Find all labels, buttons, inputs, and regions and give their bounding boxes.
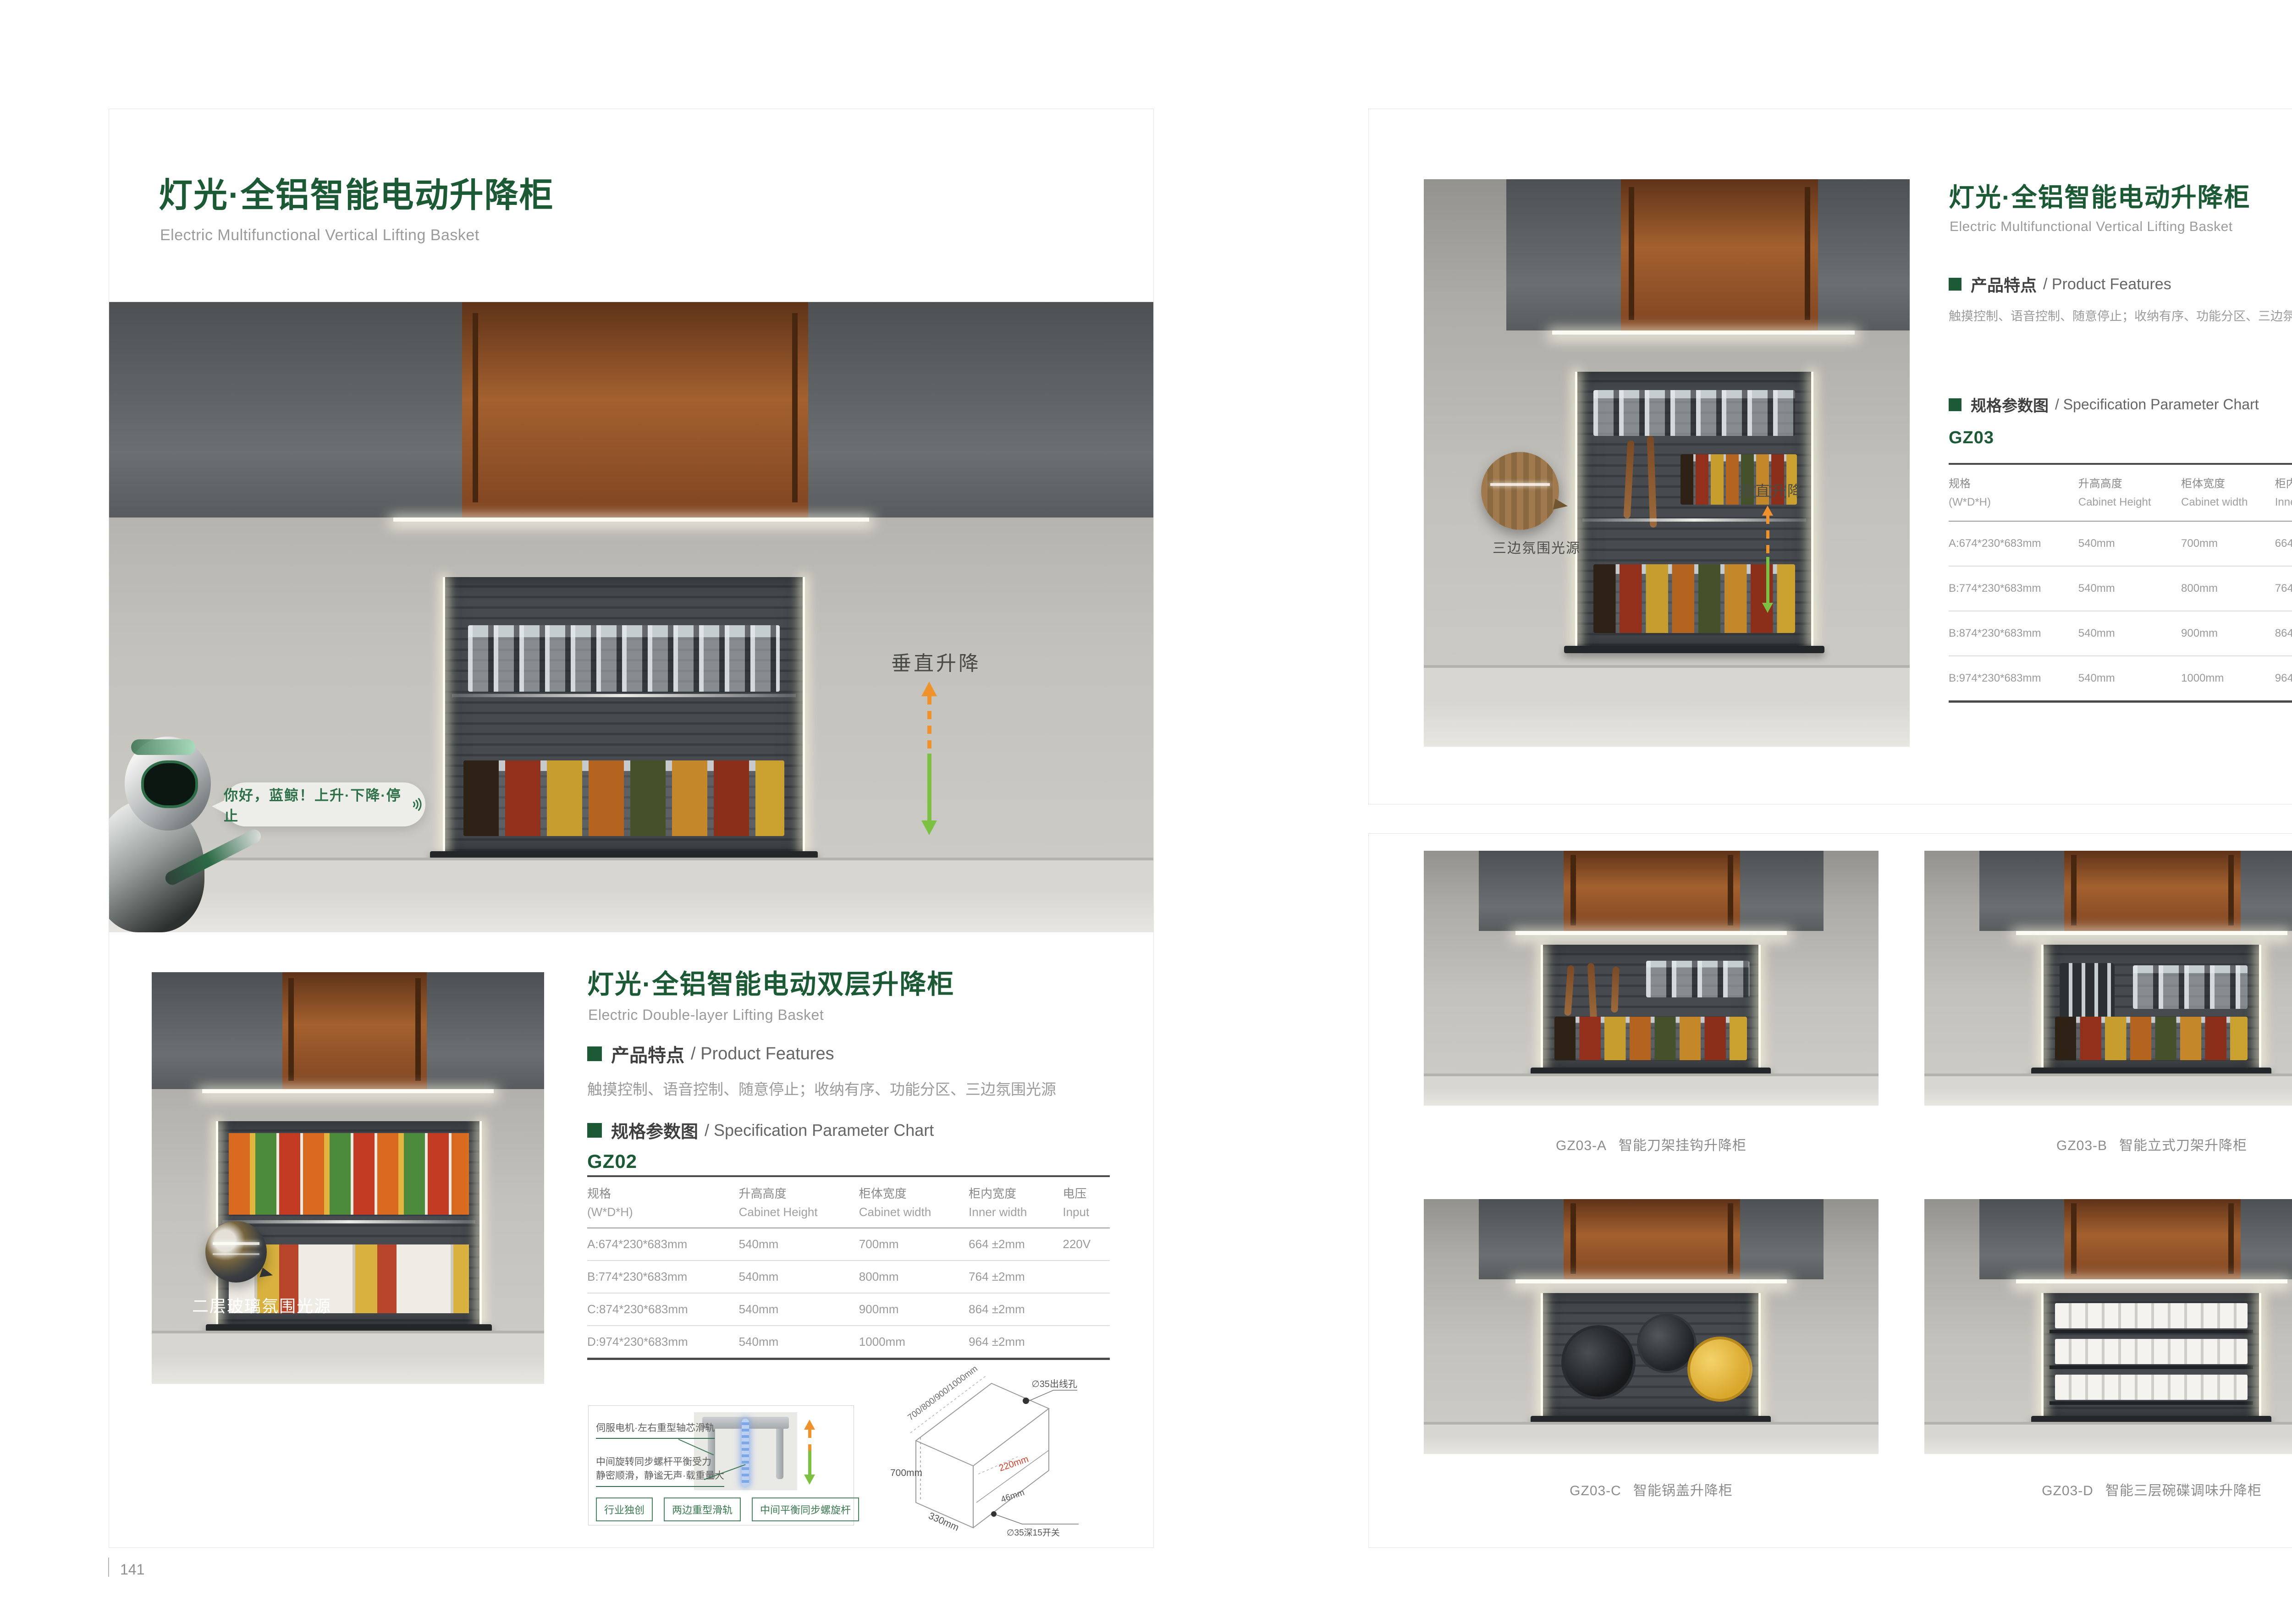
- voice-bubble-text: 你好，蓝鲸！上升·下降·停止: [224, 784, 404, 825]
- features-heading: 产品特点 / Product Features: [587, 1040, 834, 1067]
- spec-table-gz03: 规格(W*D*H) 升高高度Cabinet Height 柜体宽度Cabinet…: [1949, 463, 2292, 703]
- product-photo-gz03-b: [1924, 851, 2292, 1106]
- model-code: GZ02: [587, 1151, 637, 1173]
- table-row: B:774*230*683mm540mm800mm764 ±2mm: [587, 1260, 1110, 1293]
- spec-table-gz02: 规格(W*D*H) 升高高度Cabinet Height 柜体宽度Cabinet…: [587, 1175, 1110, 1360]
- product-caption: GZ03-C智能锅盖升降柜: [1424, 1479, 1879, 1499]
- cabinet-dimension-drawing: 700/800/900/1000mm ∅35出线孔 700mm 220mm 46…: [888, 1365, 1081, 1546]
- tag: 行业独创: [596, 1497, 653, 1521]
- product-code: GZ03-A: [1556, 1138, 1607, 1153]
- page-subtitle: Electric Multifunctional Vertical Liftin…: [160, 226, 479, 244]
- table-row: B:974*230*683mm540mm1000mm964 ±2mm: [1949, 655, 2292, 700]
- lift-arrows: [1762, 506, 1773, 613]
- table-header-row: 规格(W*D*H) 升高高度Cabinet Height 柜体宽度Cabinet…: [587, 1177, 1110, 1228]
- page-number-left: 141: [120, 1561, 144, 1578]
- green-square-bullet: [1949, 398, 1961, 411]
- product-photo-gz03-d: [1924, 1199, 2292, 1454]
- hole-label: ∅35出线孔: [1031, 1379, 1077, 1389]
- model-code: GZ03: [1949, 428, 1994, 448]
- lifting-rack: [443, 577, 805, 852]
- table-row: C:874*230*683mm540mm900mm864 ±2mm: [587, 1293, 1110, 1325]
- detail-callout-bubble: [1481, 452, 1559, 530]
- product-caption: GZ03-A智能刀架挂钩升降柜: [1424, 1134, 1879, 1154]
- page-title: 灯光·全铝智能电动升降柜: [1949, 177, 2251, 214]
- product-name: 智能锅盖升降柜: [1633, 1483, 1733, 1498]
- features-text: 触摸控制、语音控制、随意停止；收纳有序、功能分区、三边氛围光源: [587, 1077, 1146, 1099]
- cabinet-glass-doors: [462, 302, 808, 517]
- product-code: GZ03-B: [2056, 1138, 2107, 1153]
- feature-tags: 行业独创 两边重型滑轨 中间平衡同步螺旋杆: [596, 1497, 859, 1521]
- page-subtitle: Electric Multifunctional Vertical Liftin…: [1950, 219, 2233, 235]
- vertical-lift-label: 垂直升降: [891, 647, 981, 676]
- lifting-rack: [1575, 372, 1813, 647]
- photo-caption: 二层玻璃氛围光源: [192, 1293, 331, 1317]
- left-page: 灯光·全铝智能电动升降柜 Electric Multifunctional Ve…: [109, 109, 1154, 1548]
- product-name: 智能立式刀架升降柜: [2119, 1138, 2247, 1153]
- mini-lift-arrows: [804, 1420, 815, 1485]
- table-row: D:974*230*683mm540mm1000mm964 ±2mm: [587, 1325, 1110, 1358]
- table-header-row: 规格(W*D*H) 升高高度Cabinet Height 柜体宽度Cabinet…: [1949, 465, 2292, 522]
- table-row: A:674*230*683mm540mm700mm664 ±2mm220V: [587, 1228, 1110, 1260]
- spec-heading: 规格参数图 / Specification Parameter Chart: [1949, 393, 2259, 416]
- product-code: GZ03-D: [2042, 1483, 2094, 1498]
- photo-callout-caption: 三边氛围光源: [1493, 537, 1581, 557]
- robot-assistant: [109, 737, 266, 932]
- green-square-bullet: [587, 1123, 602, 1138]
- lift-arrows: [921, 682, 937, 835]
- sound-waves-icon: [408, 795, 425, 814]
- product-name: 智能刀架挂钩升降柜: [1619, 1138, 1747, 1153]
- hero-photo: 你好，蓝鲸！上升·下降·停止 垂直升降: [109, 302, 1153, 932]
- product-caption: GZ03-B智能立式刀架升降柜: [1924, 1134, 2292, 1154]
- dim-height: 700mm: [890, 1468, 922, 1478]
- tag: 中间平衡同步螺旋杆: [752, 1497, 859, 1521]
- diagram-label: 静密顺滑，静谧无声·载重量大: [596, 1469, 724, 1486]
- table-row: B:774*230*683mm540mm800mm764 ±2mm: [1949, 566, 2292, 611]
- gz03-photo: 三边氛围光源 垂直升降: [1424, 179, 1910, 747]
- diagram-label: 伺服电机·左右重型轴芯滑轨: [596, 1421, 715, 1439]
- cabinet-right: [808, 302, 1153, 517]
- section-subtitle: Electric Double-layer Lifting Basket: [588, 1007, 824, 1024]
- dim-small: 46mm: [1000, 1488, 1026, 1505]
- features-text: 触摸控制、语音控制、随意停止；收纳有序、功能分区、三边氛围光源: [1949, 306, 2292, 324]
- section-title: 灯光·全铝智能电动双层升降柜: [587, 963, 954, 1001]
- dim-depth: 330mm: [927, 1510, 960, 1533]
- right-page-top: 三边氛围光源 垂直升降 灯光·全铝智能电动升降柜 Electric Multif…: [1368, 109, 2292, 804]
- cabinet-left: [109, 302, 462, 517]
- product-photo-gz03-c: [1424, 1199, 1879, 1454]
- switch-label: ∅35深15开关: [1007, 1528, 1060, 1538]
- dim-width: 700/800/900/1000mm: [906, 1365, 980, 1423]
- product-caption: GZ03-D智能三层碗碟调味升降柜: [1924, 1479, 2292, 1499]
- table-row: B:874*230*683mm540mm900mm864 ±2mm: [1949, 611, 2292, 655]
- product-code: GZ03-C: [1570, 1483, 1621, 1498]
- pagenum-divider: [108, 1558, 109, 1577]
- green-square-bullet: [1949, 278, 1961, 291]
- product-photo-gz03-a: [1424, 851, 1879, 1106]
- detail-callout-bubble: [205, 1221, 267, 1283]
- diagram-label: 中间旋转同步螺杆平衡受力: [596, 1455, 724, 1469]
- under-cabinet-light: [393, 517, 869, 522]
- voice-bubble: 你好，蓝鲸！上升·下降·停止: [224, 782, 425, 826]
- tag: 两边重型滑轨: [664, 1497, 741, 1521]
- features-heading: 产品特点 / Product Features: [1949, 272, 2171, 296]
- product-name: 智能三层碗碟调味升降柜: [2105, 1483, 2262, 1498]
- mechanism-diagram: 伺服电机·左右重型轴芯滑轨 中间旋转同步螺杆平衡受力 静密顺滑，静谧无声·载重量…: [588, 1405, 854, 1525]
- table-row: A:674*230*683mm540mm700mm664 ±2mm220V: [1949, 522, 2292, 566]
- green-square-bullet: [587, 1046, 602, 1061]
- spec-heading: 规格参数图 / Specification Parameter Chart: [587, 1118, 934, 1143]
- right-page-bottom: GZ03-A智能刀架挂钩升降柜 GZ03-B智能立式刀架升降柜: [1368, 833, 2292, 1548]
- double-layer-photo: 二层玻璃氛围光源: [152, 972, 544, 1384]
- catalog-spread: 灯光·全铝智能电动升降柜 Electric Multifunctional Ve…: [0, 0, 2292, 1624]
- page-title: 灯光·全铝智能电动升降柜: [159, 168, 554, 217]
- dim-inner: 220mm: [997, 1454, 1030, 1474]
- vertical-lift-label: 垂直升降: [1739, 479, 1803, 501]
